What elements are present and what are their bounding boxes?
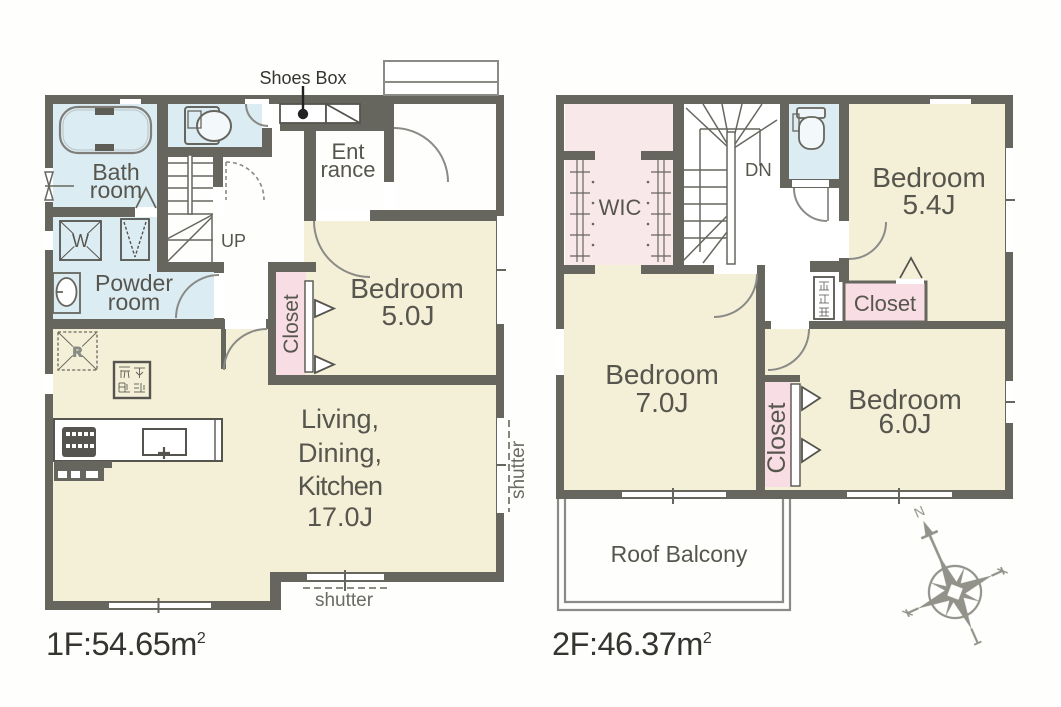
svg-text:17.0J: 17.0J [307, 502, 373, 532]
svg-text:R: R [73, 345, 82, 359]
svg-text:Closet: Closet [763, 403, 791, 474]
svg-text:Bedroom: Bedroom [605, 359, 719, 390]
svg-text:Living,: Living, [301, 404, 379, 434]
svg-text:room: room [108, 289, 160, 315]
svg-text:6.0J: 6.0J [879, 408, 932, 439]
svg-text:shutter: shutter [508, 440, 529, 499]
svg-text:rance: rance [320, 157, 375, 182]
svg-text:W: W [72, 231, 89, 251]
svg-text:Shoes Box: Shoes Box [259, 68, 346, 88]
svg-text:DN: DN [745, 159, 772, 180]
svg-text:shutter: shutter [315, 590, 374, 611]
svg-text:Roof Balcony: Roof Balcony [611, 541, 748, 567]
svg-text:5.4J: 5.4J [903, 189, 956, 220]
svg-text:Closet: Closet [854, 291, 916, 316]
svg-text:Dining,: Dining, [298, 438, 382, 468]
svg-text:1F:54.65m2: 1F:54.65m2 [46, 626, 206, 662]
svg-text:UP: UP [221, 231, 246, 251]
svg-text:Closet: Closet [280, 294, 303, 354]
svg-text:Kitchen: Kitchen [298, 471, 382, 501]
svg-text:room: room [90, 177, 142, 203]
svg-text:7.0J: 7.0J [636, 387, 689, 418]
svg-text:5.0J: 5.0J [382, 300, 435, 331]
svg-text:WIC: WIC [599, 195, 642, 220]
svg-text:2F:46.37m2: 2F:46.37m2 [552, 626, 712, 662]
